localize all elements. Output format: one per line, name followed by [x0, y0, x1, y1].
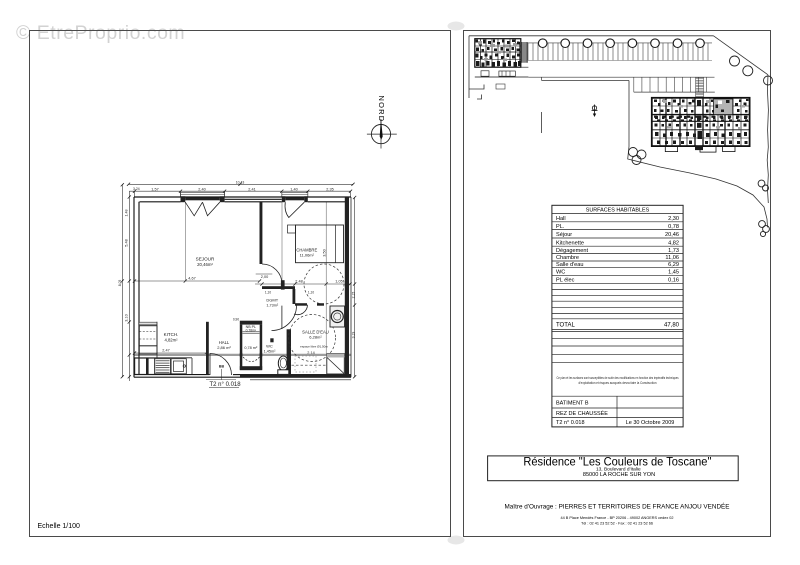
svg-text:0,78m²: 0,78m² — [246, 328, 257, 332]
svg-text:2,86 m²: 2,86 m² — [217, 345, 231, 350]
svg-text:Chambre: Chambre — [556, 255, 579, 261]
svg-text:20,46: 20,46 — [665, 232, 679, 238]
svg-text:Dégagement: Dégagement — [556, 248, 588, 254]
svg-text:6,28m²: 6,28m² — [309, 335, 322, 340]
svg-text:85000 LA ROCHE SUR YON: 85000 LA ROCHE SUR YON — [583, 472, 655, 478]
svg-text:11,06m²: 11,06m² — [300, 253, 315, 258]
svg-text:d'exploitation et risques auxq: d'exploitation et risques auxquels devra… — [579, 381, 657, 385]
svg-text:REZ DE CHAUSSÉE: REZ DE CHAUSSÉE — [556, 410, 608, 417]
svg-text:PL élec: PL élec — [556, 277, 575, 283]
svg-text:1,40: 1,40 — [290, 187, 297, 191]
svg-text:2,47: 2,47 — [162, 349, 169, 353]
svg-text:Maître d'Ouvrage : PIERRES ET: Maître d'Ouvrage : PIERRES ET TERRITOIRE… — [505, 502, 731, 511]
svg-text:1,45m²: 1,45m² — [264, 349, 277, 353]
svg-text:44 B Place Mendès France - BP: 44 B Place Mendès France - BP 20206 - 49… — [560, 516, 673, 520]
svg-text:1,73m²: 1,73m² — [266, 303, 279, 307]
svg-text:1,10: 1,10 — [308, 291, 314, 295]
svg-text:SEJOUR: SEJOUR — [196, 257, 215, 262]
svg-text:2,15: 2,15 — [352, 292, 356, 299]
svg-text:1,45: 1,45 — [668, 269, 679, 275]
svg-text:11,06: 11,06 — [665, 255, 679, 261]
svg-text:2,41: 2,41 — [248, 187, 255, 191]
svg-text:0,16: 0,16 — [668, 277, 679, 283]
svg-text:3,19: 3,19 — [352, 332, 356, 339]
svg-text:NORD: NORD — [377, 96, 386, 123]
svg-text:Salle d'eau: Salle d'eau — [556, 262, 584, 268]
svg-text:0,78 m²: 0,78 m² — [244, 346, 258, 350]
svg-text:6,29: 6,29 — [668, 262, 679, 268]
svg-text:Kitchenette: Kitchenette — [556, 240, 584, 246]
svg-text:4,82: 4,82 — [668, 240, 679, 246]
svg-text:1,48: 1,48 — [125, 210, 129, 217]
svg-text:2,35: 2,35 — [326, 187, 333, 191]
svg-text:WC: WC — [556, 269, 565, 275]
svg-text:0,90: 0,90 — [233, 317, 239, 321]
svg-text:1,73: 1,73 — [668, 248, 679, 254]
svg-text:TOTAL: TOTAL — [556, 323, 575, 329]
svg-text:2,40: 2,40 — [198, 187, 205, 191]
svg-text:KITCH.: KITCH. — [164, 332, 179, 337]
svg-text:Echelle 1/100: Echelle 1/100 — [38, 523, 81, 530]
svg-text:2,30: 2,30 — [668, 216, 679, 222]
svg-text:1,10: 1,10 — [265, 291, 271, 295]
svg-text:WC: WC — [266, 344, 273, 349]
svg-text:20,46m²: 20,46m² — [197, 262, 213, 267]
svg-text:Hall: Hall — [556, 216, 566, 222]
svg-text:2,48: 2,48 — [295, 280, 302, 284]
svg-text:2,00: 2,00 — [261, 275, 268, 279]
svg-text:4,67: 4,67 — [188, 277, 195, 281]
svg-text:1,05: 1,05 — [335, 280, 342, 284]
svg-text:T2 n° 0.018: T2 n° 0.018 — [556, 420, 585, 426]
svg-text:T2 n° 0.018: T2 n° 0.018 — [210, 382, 242, 388]
svg-text:8,05: 8,05 — [118, 280, 122, 287]
svg-text:PL.: PL. — [556, 224, 565, 230]
svg-text:Le 30 Octobre 2009: Le 30 Octobre 2009 — [626, 420, 675, 426]
svg-text:BATIMENT B: BATIMENT B — [556, 401, 589, 407]
svg-text:espace libre Ø1,50m: espace libre Ø1,50m — [300, 345, 328, 349]
svg-text:0,78: 0,78 — [668, 224, 679, 230]
svg-text:Séjour: Séjour — [556, 232, 572, 238]
svg-text:5,48: 5,48 — [125, 239, 129, 246]
svg-text:1,57: 1,57 — [151, 187, 158, 191]
svg-text:DGMT: DGMT — [266, 298, 278, 303]
svg-text:Ce plan et les surfaces sont s: Ce plan et les surfaces sont susceptible… — [557, 376, 679, 380]
svg-text:3,10: 3,10 — [125, 314, 129, 321]
svg-text:47,80: 47,80 — [664, 323, 680, 329]
svg-text:Résidence "Les Couleurs de Tos: Résidence "Les Couleurs de Toscane" — [523, 454, 711, 468]
svg-text:BB: BB — [219, 365, 225, 369]
svg-text:Tél : 02 41 23 52 52 - Fax : 0: Tél : 02 41 23 52 52 - Fax : 02 41 23 52… — [581, 522, 653, 526]
svg-text:© EtreProprio.com: © EtreProprio.com — [16, 22, 185, 44]
svg-text:3,24: 3,24 — [133, 187, 140, 191]
svg-text:10,43: 10,43 — [236, 180, 245, 184]
svg-text:4,82m²: 4,82m² — [164, 338, 178, 343]
svg-text:SURFACES HABITABLES: SURFACES HABITABLES — [586, 208, 650, 214]
